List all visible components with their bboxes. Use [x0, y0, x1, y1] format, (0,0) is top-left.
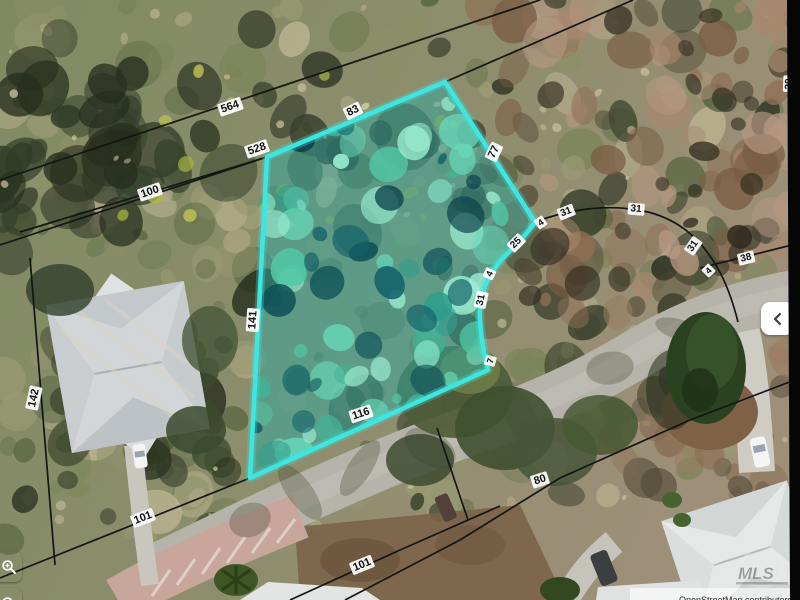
aerial-imagery: 5645281008377141142116101101803131425431… — [0, 0, 800, 600]
zoom-in-button[interactable] — [0, 551, 22, 582]
svg-text:141: 141 — [246, 310, 259, 329]
map-canvas[interactable]: 5645281008377141142116101101803131425431… — [0, 0, 800, 600]
magnifier-icon — [1, 596, 17, 600]
svg-text:31: 31 — [630, 203, 642, 215]
dimension-label: 31 — [627, 202, 645, 215]
dimension-label: 141 — [246, 308, 261, 332]
attribution-text: OpenStreetMap contributors — [679, 595, 800, 600]
chevron-left-icon — [771, 312, 785, 326]
zoom-out-button[interactable] — [0, 588, 22, 600]
magnifier-plus-icon — [1, 559, 17, 575]
map-attribution: OpenStreetMap contributors — [630, 588, 800, 600]
